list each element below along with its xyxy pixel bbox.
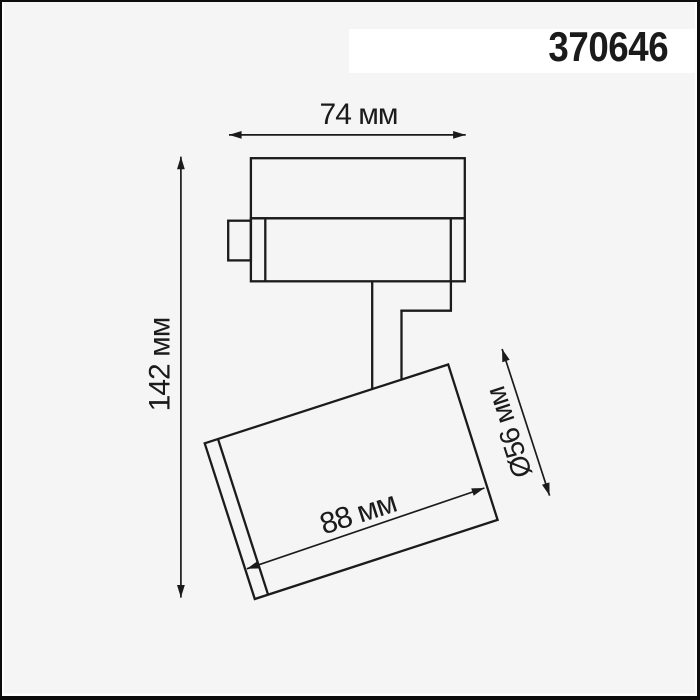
svg-text:88 мм: 88 мм bbox=[316, 486, 400, 541]
svg-text:142 мм: 142 мм bbox=[144, 318, 177, 412]
svg-text:74 мм: 74 мм bbox=[320, 98, 398, 131]
